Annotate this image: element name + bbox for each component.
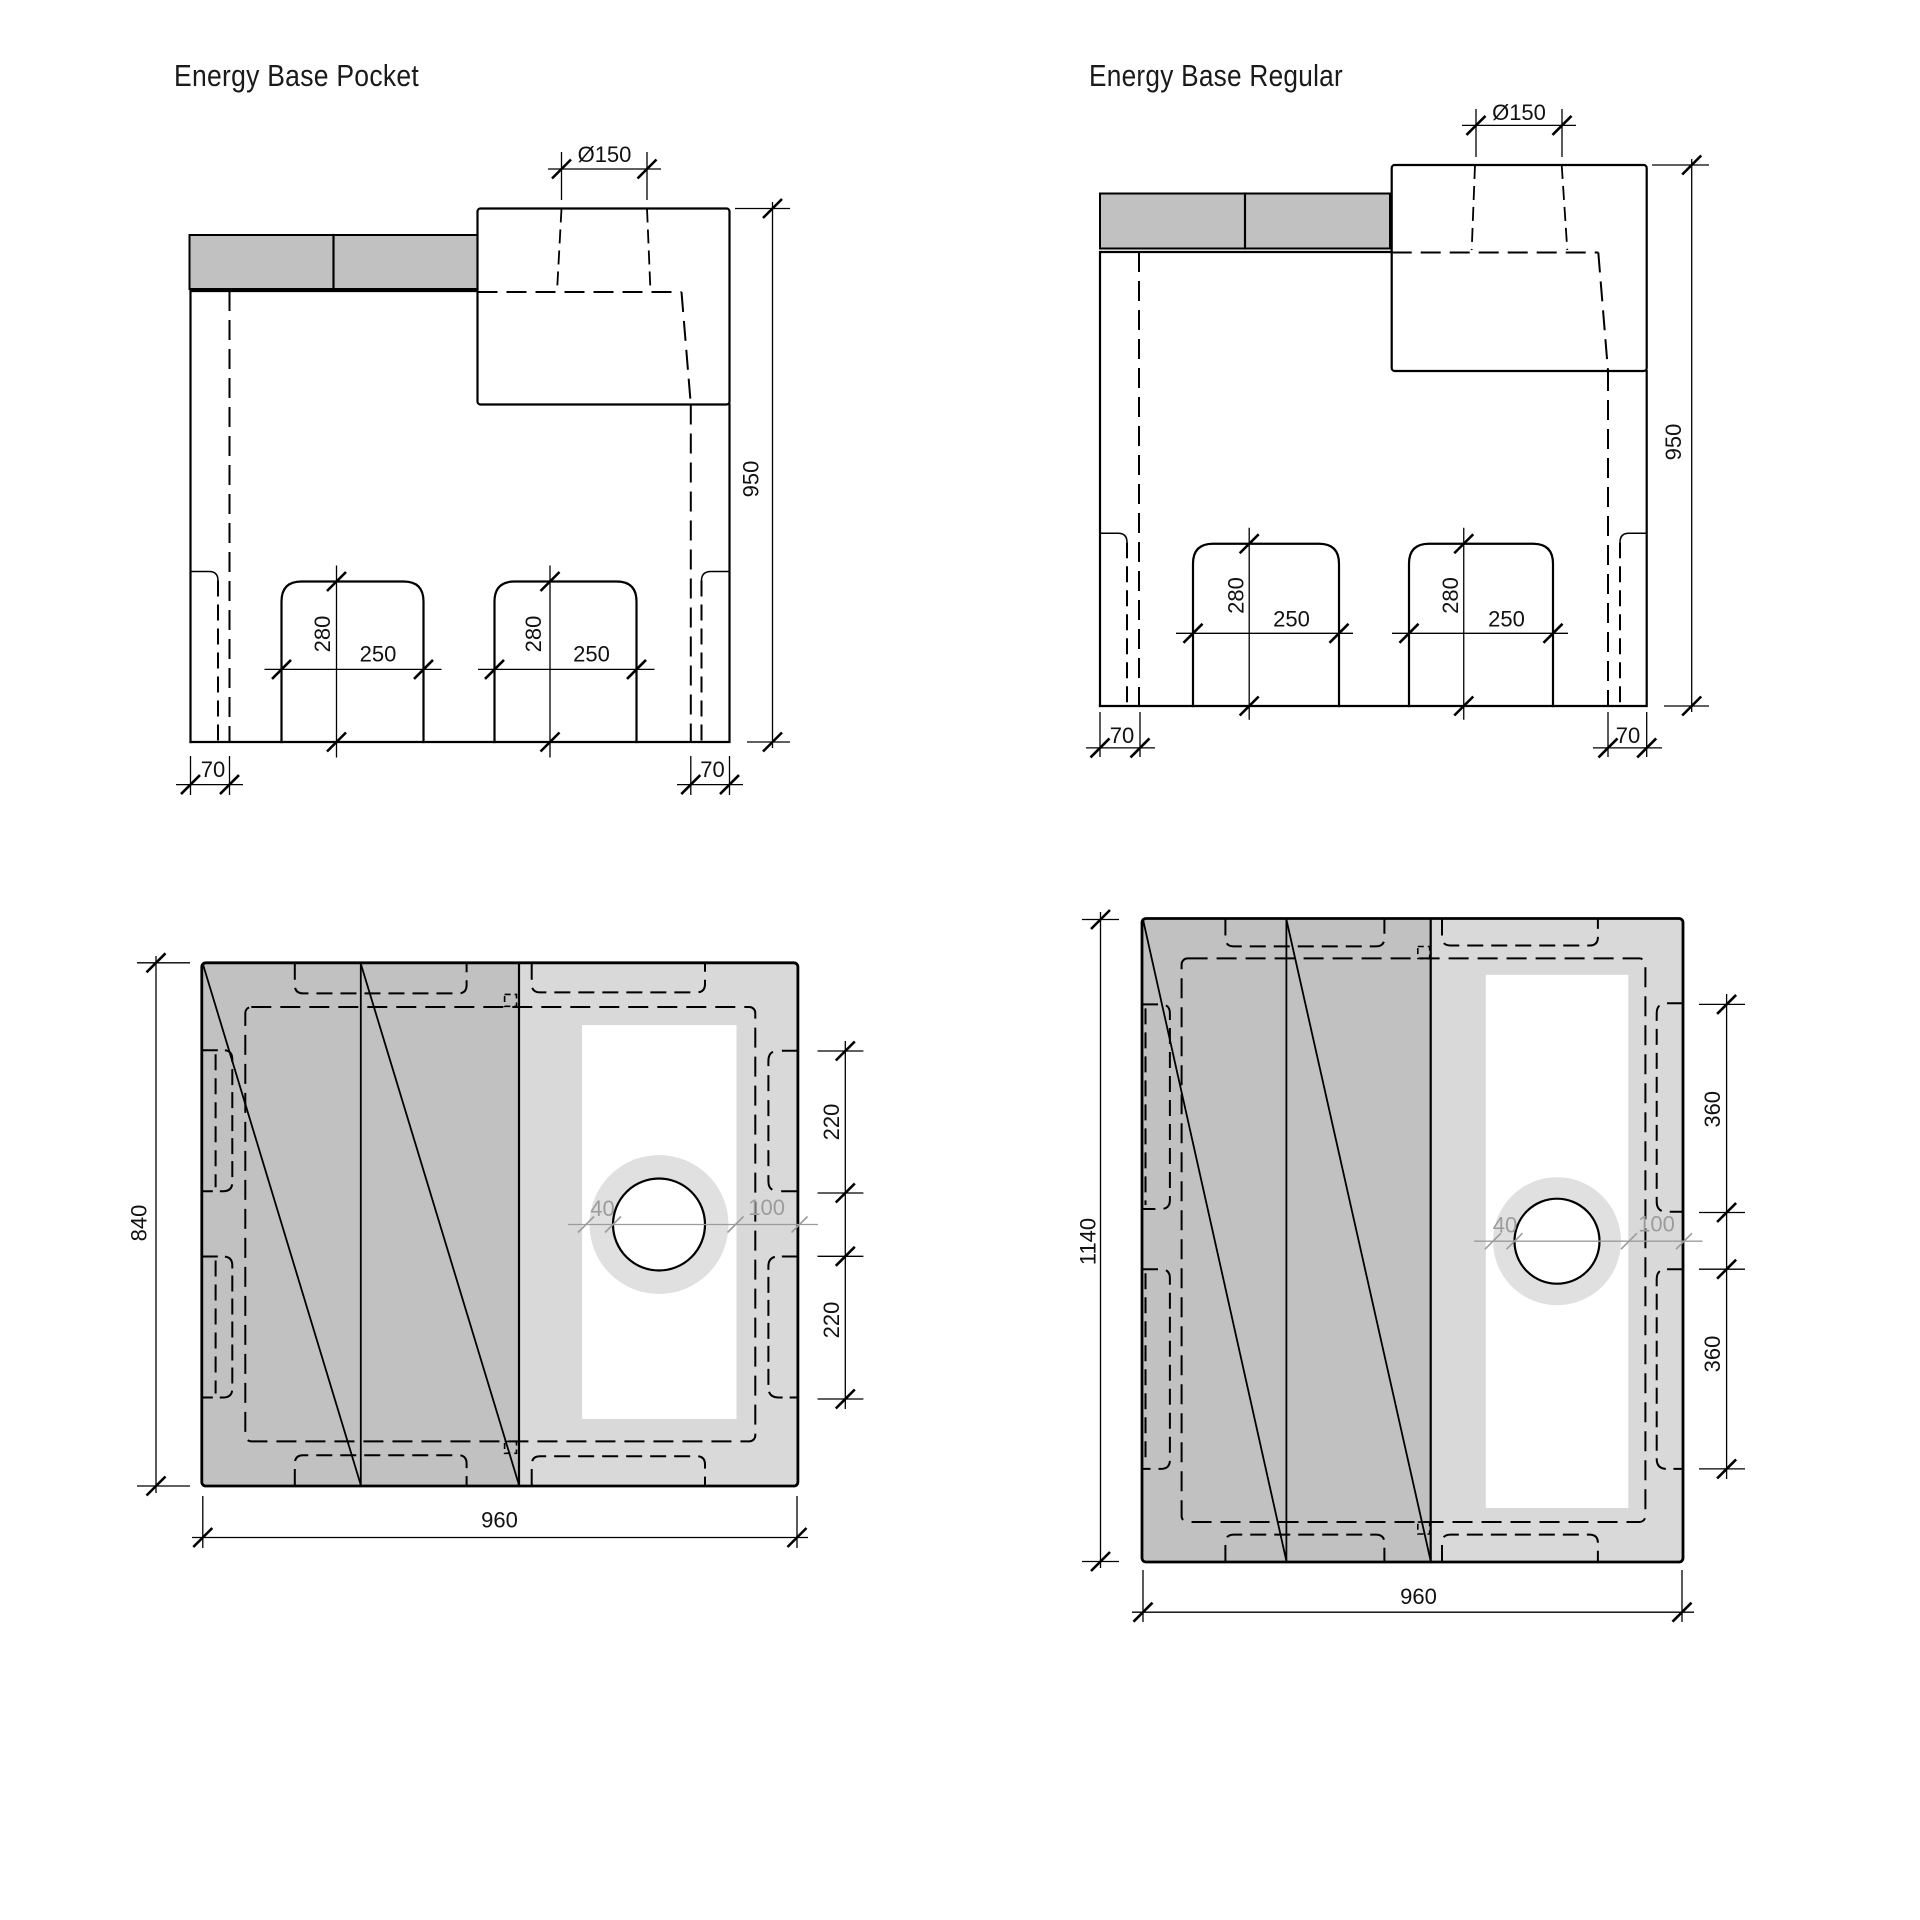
svg-text:360: 360 bbox=[1700, 1091, 1725, 1128]
svg-text:950: 950 bbox=[1661, 424, 1686, 461]
svg-text:70: 70 bbox=[1110, 723, 1134, 748]
svg-text:220: 220 bbox=[819, 1104, 844, 1141]
svg-text:950: 950 bbox=[739, 461, 764, 498]
svg-text:960: 960 bbox=[1400, 1584, 1437, 1609]
svg-text:960: 960 bbox=[481, 1508, 518, 1533]
svg-text:280: 280 bbox=[521, 616, 546, 653]
svg-text:280: 280 bbox=[1438, 577, 1463, 614]
svg-text:Ø150: Ø150 bbox=[1492, 100, 1546, 125]
svg-text:360: 360 bbox=[1700, 1336, 1725, 1373]
svg-text:840: 840 bbox=[127, 1205, 152, 1242]
svg-text:100: 100 bbox=[1638, 1212, 1675, 1237]
svg-text:40: 40 bbox=[1493, 1213, 1517, 1238]
svg-text:250: 250 bbox=[573, 642, 610, 667]
svg-text:Energy Base Pocket: Energy Base Pocket bbox=[174, 59, 419, 93]
svg-text:100: 100 bbox=[748, 1195, 785, 1220]
svg-text:Ø150: Ø150 bbox=[578, 142, 632, 167]
svg-text:40: 40 bbox=[590, 1196, 614, 1221]
svg-text:280: 280 bbox=[310, 616, 335, 653]
svg-text:250: 250 bbox=[1488, 607, 1525, 632]
svg-text:70: 70 bbox=[201, 757, 225, 782]
svg-text:250: 250 bbox=[360, 642, 397, 667]
svg-text:70: 70 bbox=[700, 757, 724, 782]
svg-text:250: 250 bbox=[1273, 607, 1310, 632]
svg-text:70: 70 bbox=[1616, 723, 1640, 748]
svg-text:220: 220 bbox=[819, 1302, 844, 1339]
svg-text:Energy Base Regular: Energy Base Regular bbox=[1089, 59, 1343, 93]
svg-text:280: 280 bbox=[1224, 577, 1249, 614]
svg-text:1140: 1140 bbox=[1076, 1218, 1101, 1265]
